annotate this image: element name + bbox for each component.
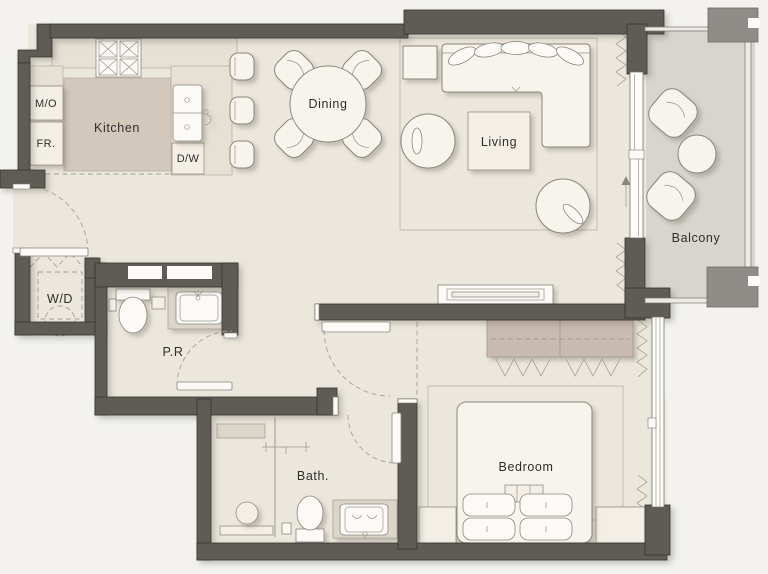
floor-plan: Kitchen Dining Living Balcony Bedroom Ba…: [0, 0, 768, 574]
wall-balconydoor-north: [627, 24, 647, 74]
bath-shelf: [217, 424, 265, 438]
pr-bin: [152, 297, 165, 309]
tv: [452, 292, 539, 297]
living-label: Living: [481, 135, 517, 149]
floor-plan-drawing: Kitchen Dining Living Balcony Bedroom Ba…: [0, 0, 768, 574]
tp-holder: [109, 299, 116, 311]
balcony-table: [678, 135, 716, 173]
armchair: [536, 179, 590, 233]
door-jamb: [13, 184, 30, 189]
bath-vanity: [333, 500, 397, 540]
pr-vanity: [168, 287, 228, 329]
bath-label: Bath.: [297, 469, 329, 483]
armchair: [401, 114, 455, 168]
door-handle: [629, 150, 644, 159]
balcony-sliding-door: [629, 72, 644, 238]
wall-south: [197, 543, 667, 560]
wall-top-right: [404, 10, 664, 34]
entry-threshold-floor: [13, 186, 30, 252]
powder-room-fixtures: [109, 287, 228, 333]
powder-room-label: P.R: [162, 345, 183, 359]
balcony-post: [707, 267, 758, 307]
kitchen-left-counter: [30, 66, 63, 86]
pr-wall-niche: [167, 266, 212, 279]
bath-stool: [236, 502, 258, 524]
toilet: [296, 496, 324, 542]
door-jamb: [224, 333, 237, 338]
door-jamb: [398, 399, 417, 403]
side-table: [403, 46, 437, 79]
wall-living-bedroom: [315, 304, 645, 320]
microwave-label: M/O: [35, 98, 57, 110]
tv-console: [438, 285, 553, 304]
cooktop: [96, 39, 141, 77]
post-notch: [748, 18, 760, 28]
balcony-label: Balcony: [672, 231, 721, 245]
dining-label: Dining: [308, 97, 347, 111]
wall-top-left: [50, 24, 408, 38]
wall-wd-bottom: [15, 322, 107, 335]
nightstand: [596, 507, 645, 543]
wall-bedroom-se: [645, 505, 670, 555]
shower-bench: [220, 526, 273, 535]
wall-pr-right: [222, 263, 238, 335]
bar-stool: [230, 53, 254, 80]
pr-wall-niche: [128, 266, 162, 279]
rail-top: [645, 27, 710, 31]
bar-stools: [230, 53, 254, 168]
door-jamb: [315, 304, 319, 320]
rail-bottom: [645, 298, 709, 303]
nightstand: [419, 507, 456, 543]
window-handle: [648, 418, 656, 428]
washer-dryer-label: W/D: [47, 292, 73, 306]
door-jamb: [333, 397, 338, 415]
bath-bin: [282, 523, 291, 534]
kitchen-top-counter: [52, 38, 237, 68]
post-notch: [748, 276, 760, 286]
dishwasher-label: D/W: [177, 153, 200, 165]
wall-bath-left: [197, 399, 211, 560]
wall-pr-bath: [95, 397, 338, 415]
fridge-label: FR.: [37, 138, 56, 150]
wall-west-upper: [18, 63, 30, 172]
rail-right: [745, 40, 751, 268]
wall-pr-top: [95, 263, 238, 287]
bar-stool: [230, 97, 254, 124]
wardrobe: [487, 320, 633, 357]
bedroom-label: Bedroom: [499, 460, 554, 474]
kitchen-label: Kitchen: [94, 121, 140, 135]
bar-stool: [230, 141, 254, 168]
